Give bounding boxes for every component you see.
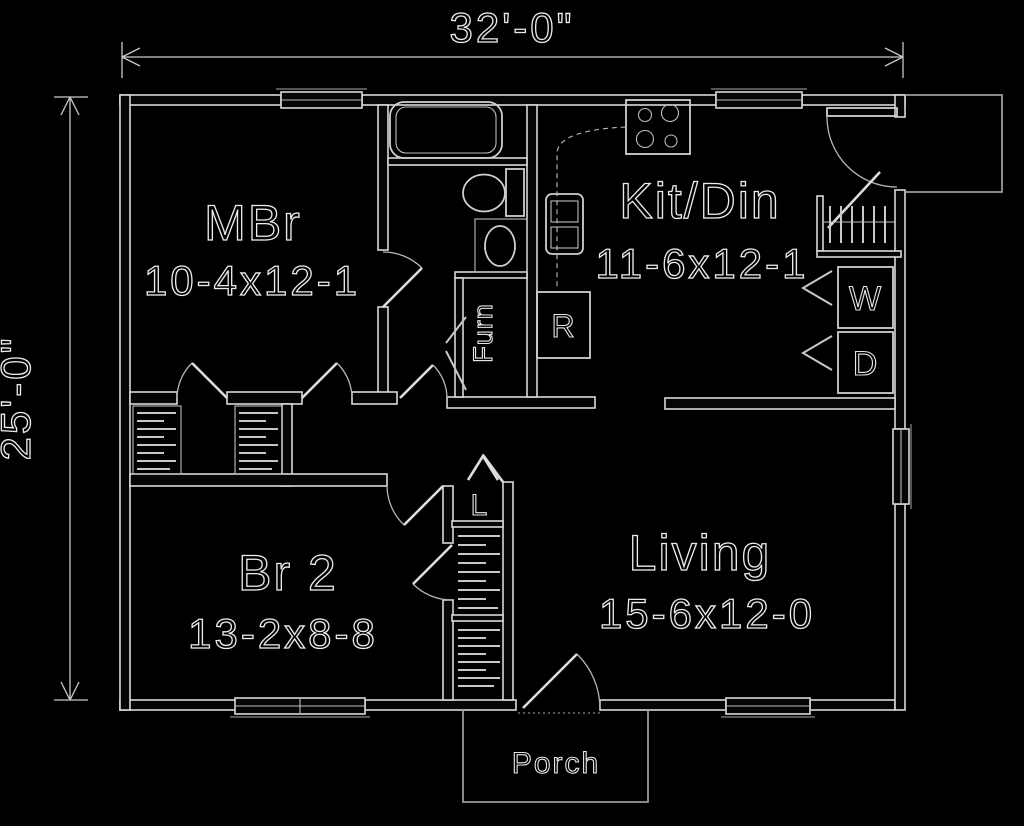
window-mbr-top <box>276 89 367 108</box>
room-label-kitdin: Kit/Din <box>619 173 780 229</box>
window-living-right <box>893 424 911 509</box>
floor-plan-drawing: 32'-0" 25'-0" <box>0 0 1024 826</box>
door-mbr-entry <box>302 363 352 398</box>
stoop-outline <box>905 95 1002 192</box>
bath-sink-vanity <box>475 219 527 272</box>
room-label-living: Living <box>629 525 772 581</box>
refrigerator-label: R <box>551 308 574 344</box>
room-dims-living: 15-6x12-0 <box>599 590 815 637</box>
room-dims-br2: 13-2x8-8 <box>188 610 378 657</box>
dimension-height: 25'-0" <box>0 97 88 700</box>
room-label-mbr: MBr <box>204 195 302 251</box>
washer-label: W <box>849 280 881 318</box>
door-mbr-bath <box>383 252 422 307</box>
refrigerator: R <box>537 292 590 358</box>
overall-width-label: 32'-0" <box>450 4 575 51</box>
toilet <box>463 169 524 216</box>
washer: W <box>838 267 893 328</box>
room-dims-mbr: 10-4x12-1 <box>144 257 360 304</box>
mbr-closet-right <box>235 406 282 474</box>
dimension-width: 32'-0" <box>122 4 903 78</box>
door-br2-closet <box>413 545 452 600</box>
overall-height-label: 25'-0" <box>0 336 39 461</box>
bathtub <box>390 102 502 158</box>
range-stove <box>626 100 690 154</box>
door-bath-hall <box>400 365 447 398</box>
hall-closet-rod <box>824 206 895 243</box>
entry-coat-closet-shelves <box>458 630 500 686</box>
door-dryer-bifold <box>803 336 832 370</box>
linen-closet: L <box>471 489 488 522</box>
bathroom-fixtures <box>390 102 527 272</box>
floor-plan-canvas: 32'-0" 25'-0" <box>0 0 1024 826</box>
door-br2-entry <box>387 486 443 525</box>
dryer: D <box>838 332 893 393</box>
dryer-label: D <box>853 345 878 383</box>
window-kitchen-top <box>711 89 807 108</box>
door-front-entry <box>518 654 600 713</box>
room-label-porch: Porch <box>512 747 600 780</box>
room-dims-kitdin: 11-6x12-1 <box>595 240 808 287</box>
br2-closet-shelves <box>458 536 500 608</box>
door-mbr-closet <box>177 363 227 398</box>
kitchen-sink <box>546 194 583 254</box>
linen-label: L <box>471 489 488 522</box>
furnace-label: Furn <box>468 303 498 363</box>
kitchen-fixtures: R <box>537 100 690 358</box>
mbr-closet-left <box>133 406 181 474</box>
window-br2-bottom-double <box>230 698 370 717</box>
room-label-br2: Br 2 <box>238 545 338 601</box>
furnace-closet: Furn <box>468 303 498 363</box>
window-living-bottom <box>721 698 815 717</box>
laundry-appliances: W D <box>838 267 893 393</box>
